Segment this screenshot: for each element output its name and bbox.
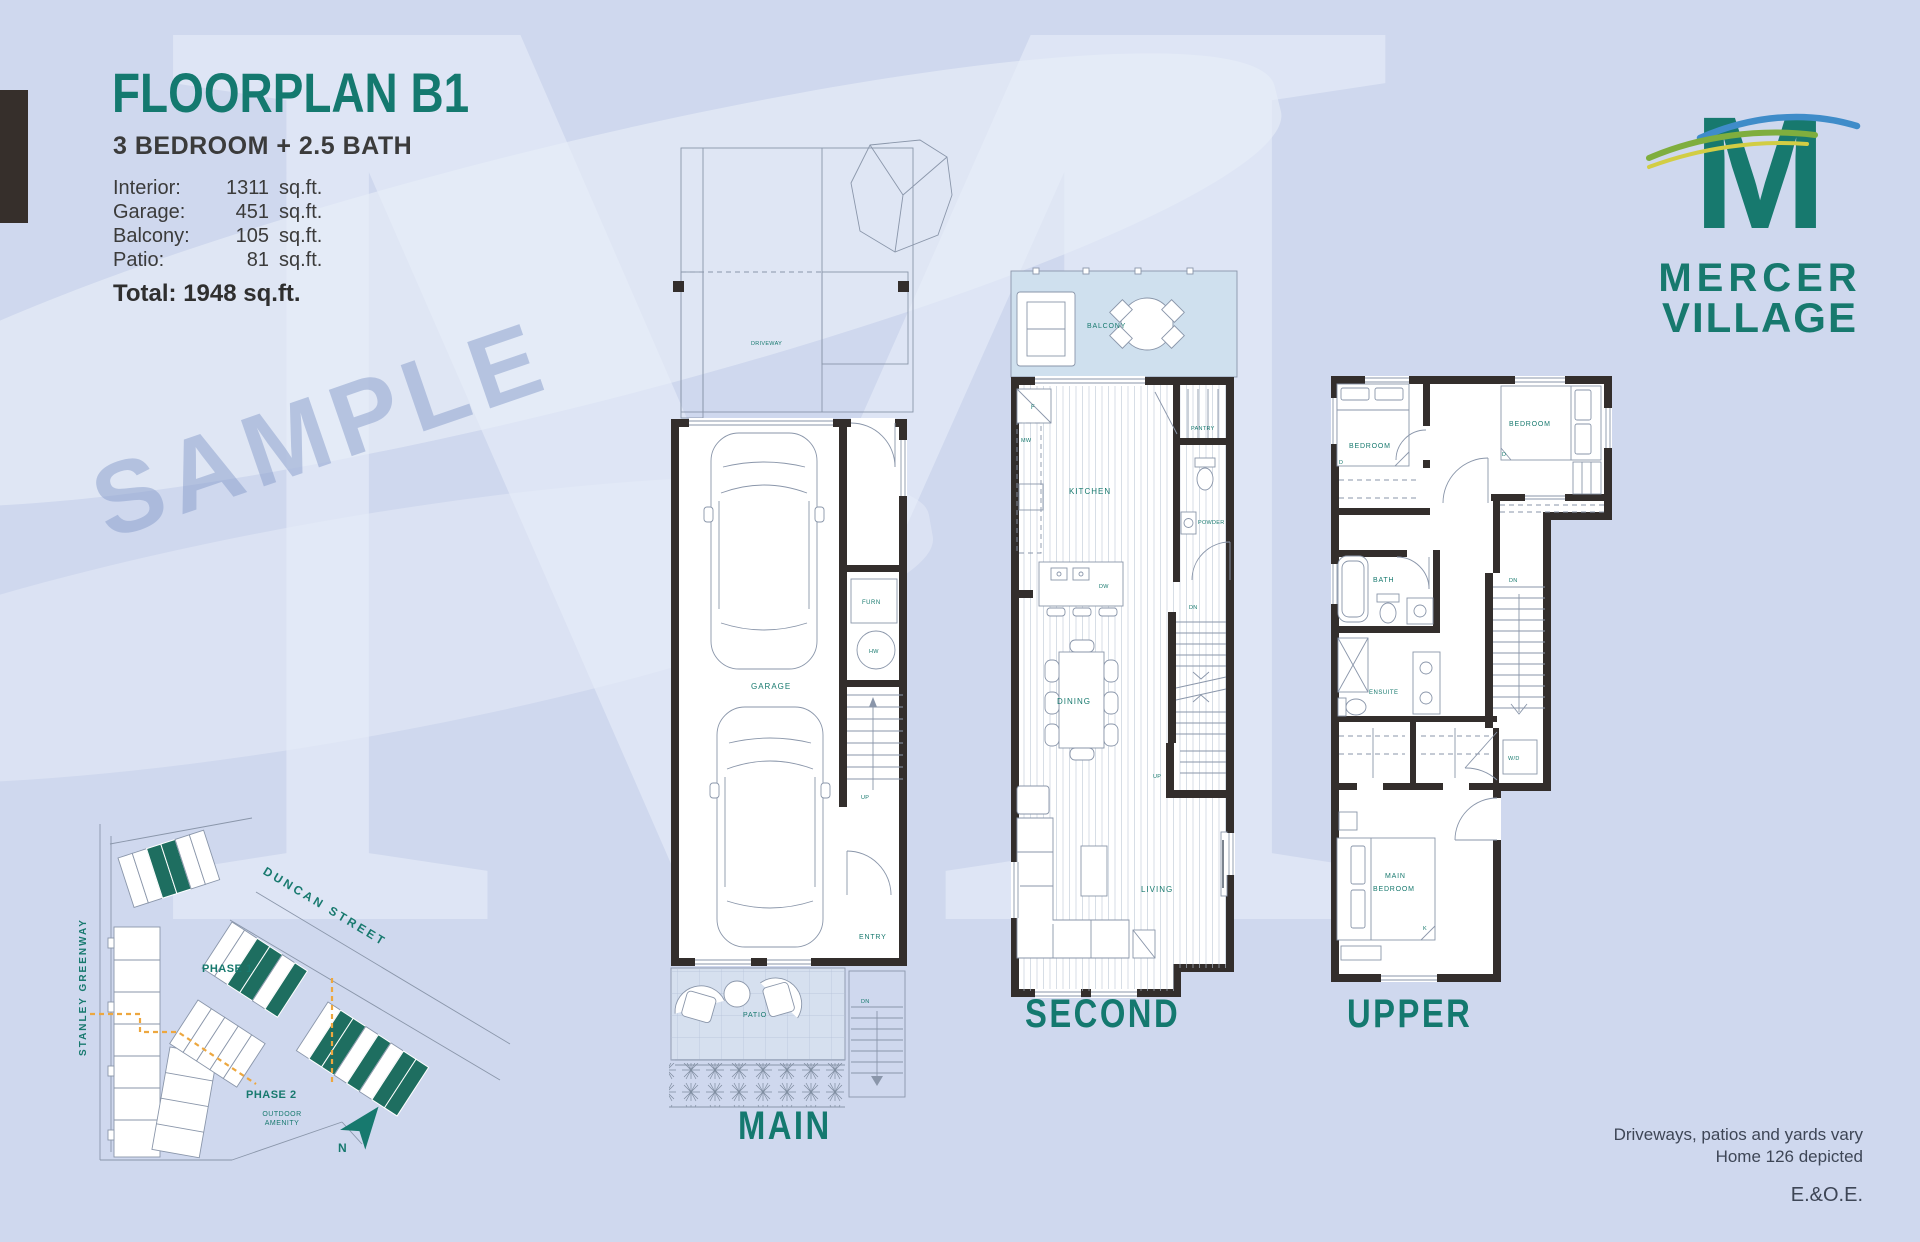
driveway-label: DRIVEWAY: [751, 341, 782, 347]
stat-label: Balcony:: [113, 224, 209, 248]
street-label-stanley: STANLEY GREENWAY: [78, 918, 89, 1056]
stat-unit: sq.ft.: [279, 200, 322, 224]
toilet-icon: [1195, 458, 1215, 490]
footnote: Driveways, patios and yards vary Home 12…: [1614, 1124, 1863, 1168]
sink-icon: [1407, 598, 1433, 624]
up-label: UP: [1153, 774, 1161, 780]
building-block: [108, 927, 160, 1157]
outdoor-amenity-label: AMENITY: [265, 1120, 300, 1127]
balcony-label: BALCONY: [1087, 323, 1126, 330]
stat-value: 105: [219, 224, 269, 248]
stat-unit: sq.ft.: [279, 224, 322, 248]
pantry-label: PANTRY: [1191, 426, 1215, 432]
bedroom-label: BEDROOM: [1509, 421, 1551, 428]
plan-title-main-text: MAIN: [738, 1104, 832, 1149]
page-title: FLOORPLAN B1: [112, 60, 548, 125]
plan-title-upper-text: UPPER: [1347, 992, 1472, 1037]
up-label: UP: [861, 795, 869, 801]
plan-title-main: MAIN: [655, 1104, 935, 1149]
car-icon: [704, 433, 824, 669]
kitchen-island: DW: [1039, 562, 1123, 616]
stat-label: Interior:: [113, 176, 209, 200]
site-map: PHASE 1 PHASE 2 OUTDOOR AMENITY DUNCAN S…: [70, 792, 520, 1194]
balcony-area: BALCONY: [1011, 268, 1237, 377]
stats-total: Total: 1948 sq.ft.: [113, 280, 301, 308]
stat-unit: sq.ft.: [279, 248, 322, 272]
driveway-area: DRIVEWAY: [673, 140, 952, 418]
eoe-label: E.&O.E.: [1791, 1184, 1863, 1207]
mercer-village-logo: M MERCER VILLAGE: [1645, 78, 1875, 338]
exterior-steps-down: DN: [849, 971, 905, 1097]
toilet-icon: [1338, 698, 1366, 716]
car-icon: [710, 707, 830, 947]
ensuite-label: ENSUITE: [1369, 690, 1399, 696]
sink-icon: [1181, 512, 1196, 534]
plan-title-second: SECOND: [995, 992, 1245, 1037]
wd-label: W/D: [1508, 756, 1520, 762]
entry-label: ENTRY: [859, 934, 887, 941]
hedge-icon: [669, 1063, 845, 1107]
building-block: [296, 1002, 428, 1116]
dn-label: DN: [861, 999, 870, 1005]
hot-water-label: HW: [869, 649, 879, 655]
microwave-label: MW: [1021, 438, 1032, 444]
coffee-table-icon: [1081, 846, 1107, 896]
bed-size-label: D: [1339, 460, 1343, 466]
dn-label: DN: [1509, 578, 1518, 584]
stat-value: 451: [219, 200, 269, 224]
brand-bar: [0, 90, 28, 223]
powder-label: POWDER: [1198, 520, 1225, 526]
outdoor-amenity-label: OUTDOOR: [262, 1111, 301, 1118]
patio-label: PATIO: [743, 1012, 767, 1019]
floorplan-main: DRIVEWAY FURN: [655, 135, 967, 1110]
main-bedroom-label-1: MAIN: [1385, 873, 1406, 880]
garage-block: FURN HW UP ENTRY GARA: [675, 418, 907, 966]
stat-value: 81: [219, 248, 269, 272]
double-vanity-icon: [1413, 652, 1440, 714]
stat-row: Patio: 81 sq.ft.: [113, 248, 322, 272]
floorplan-upper: D BEDROOM BEDROOM D: [1325, 368, 1617, 1018]
main-bedroom-label-2: BEDROOM: [1373, 886, 1415, 893]
logo-monogram: M: [1693, 83, 1826, 262]
page-subtitle: 3 BEDROOM + 2.5 BATH: [113, 132, 412, 161]
phase1-label: PHASE 1: [202, 963, 253, 975]
patio-table-icon: [724, 981, 750, 1007]
bed-size-label: D: [1502, 452, 1506, 458]
flyer-page: M SAMPLE FLOORPLAN B1 3 BEDROOM + 2.5 BA…: [0, 0, 1920, 1242]
stat-value: 1311: [219, 176, 269, 200]
fridge-label: F: [1031, 405, 1035, 411]
furnace-label: FURN: [862, 600, 881, 606]
bath-label: BATH: [1373, 577, 1394, 584]
dining-label: DINING: [1057, 697, 1091, 706]
page-title-text: FLOORPLAN B1: [112, 60, 469, 125]
footnote-line2: Home 126 depicted: [1614, 1146, 1863, 1168]
bed-size-label: K: [1423, 926, 1427, 932]
footnote-line1: Driveways, patios and yards vary: [1614, 1124, 1863, 1146]
kitchen-label: KITCHEN: [1069, 487, 1111, 496]
bedroom-label: BEDROOM: [1349, 443, 1391, 450]
north-label: N: [338, 1141, 347, 1155]
garage-label: GARAGE: [751, 682, 791, 691]
stat-row: Interior: 1311 sq.ft.: [113, 176, 322, 200]
stat-label: Garage:: [113, 200, 209, 224]
stats-list: Interior: 1311 sq.ft. Garage: 451 sq.ft.…: [113, 176, 322, 272]
logo-name-village: VILLAGE: [1662, 294, 1858, 341]
patio-area: PATIO: [671, 968, 845, 1065]
stat-row: Balcony: 105 sq.ft.: [113, 224, 322, 248]
tree-icon: [851, 140, 952, 252]
phase2-label: PHASE 2: [246, 1089, 297, 1101]
plan-title-upper: UPPER: [1298, 992, 1548, 1037]
living-label: LIVING: [1141, 885, 1173, 894]
stat-label: Patio:: [113, 248, 209, 272]
floorplan-second: BALCONY F MW DW: [995, 262, 1249, 1002]
plan-title-second-text: SECOND: [1025, 992, 1180, 1037]
building-block: [118, 830, 220, 907]
sofa-icon: [1017, 292, 1075, 366]
stat-row: Garage: 451 sq.ft.: [113, 200, 322, 224]
dishwasher-label: DW: [1099, 584, 1109, 590]
dn-label: DN: [1189, 605, 1198, 611]
stat-unit: sq.ft.: [279, 176, 322, 200]
bench-icon: [1341, 946, 1381, 960]
